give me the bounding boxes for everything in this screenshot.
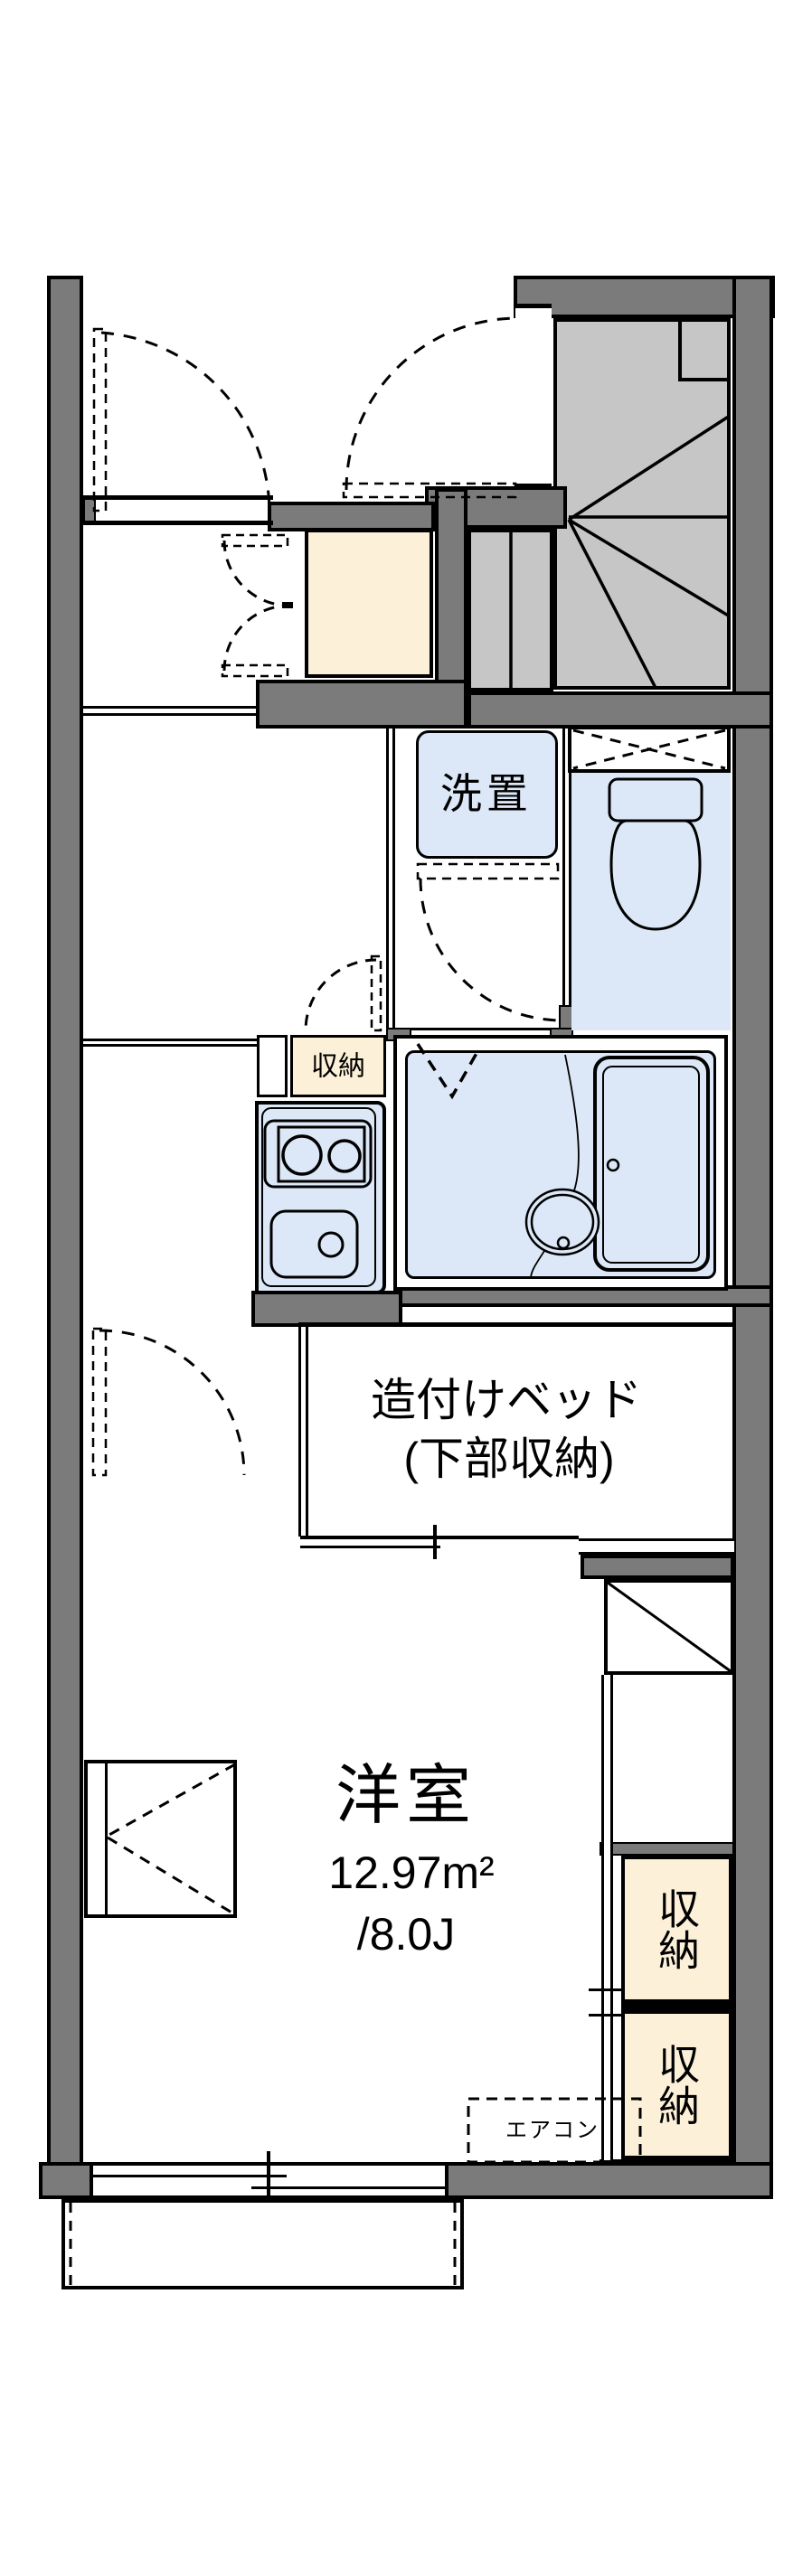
- wall-washroom-left: [386, 729, 395, 1030]
- hall-step-line-1: [83, 706, 256, 709]
- wall-bottom: [445, 2162, 773, 2199]
- closet-with-shelf: [604, 1579, 734, 1675]
- storage-small-label: 収納: [311, 1052, 365, 1081]
- kitchen-edge-line-1: [83, 1039, 257, 1041]
- hall-step-line-2: [83, 713, 256, 716]
- bed-label-line2: (下部収納): [403, 1435, 614, 1483]
- aircon-label: エアコン: [505, 2119, 600, 2141]
- wall-bottom-left-stub: [39, 2162, 93, 2199]
- entrance-step-line-2: [83, 521, 273, 525]
- bed-window-line-2: [300, 1546, 440, 1548]
- bed-window-tick: [433, 1525, 437, 1559]
- wall-right: [732, 276, 773, 2199]
- room-area-m2-label: 12.97m²: [328, 1849, 494, 1897]
- counter-box-inner-line: [105, 1760, 108, 1918]
- closet-track-tick-1: [589, 1988, 625, 1991]
- closet-front-track: [601, 1675, 613, 2160]
- wall-entrance-band: [268, 502, 435, 531]
- stairs-door-opening: [515, 304, 552, 488]
- bed-alcove-opening: [579, 1538, 734, 1555]
- wall-genkan-stairs: [435, 488, 467, 692]
- kitchen-edge-line-2: [83, 1044, 257, 1047]
- wall-bed-left: [298, 1327, 308, 1537]
- bed-top-line: [298, 1322, 734, 1327]
- stairs-lower-run: [467, 529, 553, 691]
- room-area-jo-label: /8.0J: [357, 1911, 455, 1959]
- stairs-landing: [678, 318, 731, 381]
- bed-label-line1: 造付けベッド: [371, 1377, 642, 1424]
- wall-stairs-south: [467, 691, 773, 729]
- entrance-doors: [94, 318, 517, 513]
- wall-left: [47, 276, 83, 2199]
- wall-kitchen-south: [251, 1291, 402, 1327]
- genkan-floor: [305, 529, 433, 678]
- south-window-line-3: [251, 2186, 445, 2189]
- storage-small-door: [306, 956, 381, 1030]
- closet-upper-label: 収納: [655, 1887, 698, 1970]
- toilet-upper-cabinet: [568, 726, 731, 773]
- toilet-floor: [571, 773, 731, 1030]
- wall-bed-south: [581, 1555, 734, 1579]
- washroom-door: [418, 864, 562, 1020]
- room-name-label: 洋室: [335, 1763, 477, 1831]
- closet-lower-label: 収納: [655, 2043, 698, 2126]
- bed-window-line-1: [300, 1536, 579, 1539]
- floor-plan: 洗置 収納 造付けベッド (下部収納) 洋室 12.97m² /8.0J 収納 …: [0, 0, 812, 2576]
- washer-label: 洗置: [440, 772, 533, 815]
- balcony: [61, 2199, 464, 2289]
- wall-genkan-south: [256, 680, 467, 729]
- storage-side-box: [257, 1035, 288, 1097]
- closet-track-tick-2: [589, 2014, 625, 2017]
- south-window-line-2: [93, 2175, 287, 2177]
- kitchen-unit: [255, 1101, 386, 1294]
- genkan-double-door: [222, 535, 293, 676]
- entrance-step-line-1: [83, 495, 273, 500]
- bathroom-floor: [405, 1050, 716, 1279]
- western-room-door: [93, 1329, 244, 1475]
- wall-closet-top-bar: [600, 1842, 734, 1856]
- closet-divider: [621, 2003, 732, 2010]
